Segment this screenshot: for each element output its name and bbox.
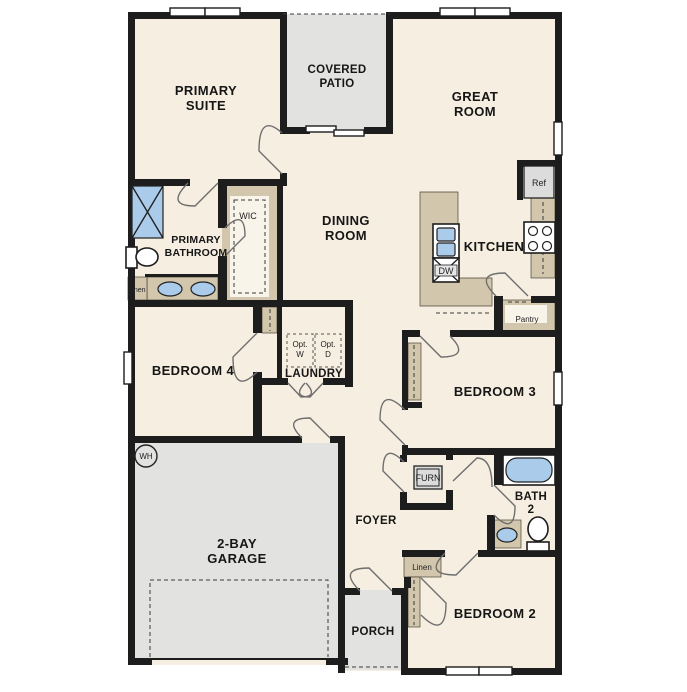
label-primary-suite-2: SUITE bbox=[186, 98, 226, 113]
label-bedroom3: BEDROOM 3 bbox=[454, 384, 536, 399]
label-opt-w-2: W bbox=[296, 350, 304, 359]
label-ref: Ref bbox=[532, 178, 547, 188]
label-opt-d-2: D bbox=[325, 350, 331, 359]
kitchen-sink bbox=[433, 224, 459, 258]
label-laundry: LAUNDRY bbox=[285, 368, 343, 380]
vanity-sink-left bbox=[158, 282, 182, 296]
patio-slider-panel-2 bbox=[334, 130, 364, 136]
window-bedroom2-1 bbox=[446, 667, 479, 675]
garage-door-header bbox=[150, 658, 328, 660]
label-bedroom2: BEDROOM 2 bbox=[454, 606, 536, 621]
toilet-primary bbox=[126, 247, 158, 268]
exterior-mask bbox=[120, 665, 338, 687]
window-great-room-right bbox=[554, 122, 562, 155]
label-wic: WIC bbox=[239, 211, 257, 221]
bedroom3-closet bbox=[408, 343, 421, 400]
label-opt-d-1: Opt. bbox=[320, 340, 335, 349]
label-great-room-1: GREAT bbox=[452, 89, 499, 104]
window-primary-suite-2 bbox=[205, 8, 240, 16]
cooktop bbox=[524, 222, 555, 253]
label-linen-hall: Linen bbox=[412, 563, 432, 572]
label-primary-bathroom-2: BATHROOM bbox=[165, 247, 228, 259]
label-garage-2: GARAGE bbox=[207, 551, 266, 566]
label-bath2-1: BATH bbox=[515, 491, 547, 503]
window-great-room-top-2 bbox=[475, 8, 510, 16]
label-primary-suite-1: PRIMARY bbox=[175, 83, 237, 98]
label-pantry: Pantry bbox=[515, 315, 538, 324]
bathtub bbox=[503, 455, 555, 485]
label-garage-1: 2-BAY bbox=[217, 536, 257, 551]
label-furn: FURN bbox=[416, 473, 441, 483]
window-great-room-top-1 bbox=[440, 8, 475, 16]
bath2-sink bbox=[497, 528, 517, 542]
label-bath2-2: 2 bbox=[528, 504, 535, 516]
label-linen-bath: Linen bbox=[128, 287, 145, 294]
label-covered-patio-2: PATIO bbox=[320, 78, 355, 90]
window-bedroom4 bbox=[124, 352, 132, 384]
label-porch: PORCH bbox=[351, 626, 394, 638]
shower bbox=[132, 186, 163, 238]
window-bedroom2-2 bbox=[479, 667, 512, 675]
window-primary-suite-1 bbox=[170, 8, 205, 16]
label-bedroom4: BEDROOM 4 bbox=[152, 363, 235, 378]
label-dw: DW bbox=[439, 266, 454, 276]
label-kitchen: KITCHEN bbox=[464, 239, 525, 254]
toilet-bath2 bbox=[527, 517, 549, 551]
label-great-room-2: ROOM bbox=[454, 104, 496, 119]
floor-plan-drawing: PRIMARY SUITE COVERED PATIO GREAT ROOM D… bbox=[0, 0, 687, 687]
label-wh: WH bbox=[139, 452, 153, 461]
floor-plan-page: PRIMARY SUITE COVERED PATIO GREAT ROOM D… bbox=[0, 0, 687, 687]
label-primary-bathroom-1: PRIMARY bbox=[171, 234, 220, 246]
label-opt-w-1: Opt. bbox=[292, 340, 307, 349]
window-bedroom3 bbox=[554, 372, 562, 405]
label-foyer: FOYER bbox=[355, 515, 397, 527]
patio-slider-panel-1 bbox=[306, 126, 336, 132]
label-covered-patio-1: COVERED bbox=[308, 64, 367, 76]
vanity-sink-right bbox=[191, 282, 215, 296]
label-dining-2: ROOM bbox=[325, 228, 367, 243]
label-dining-1: DINING bbox=[322, 213, 370, 228]
